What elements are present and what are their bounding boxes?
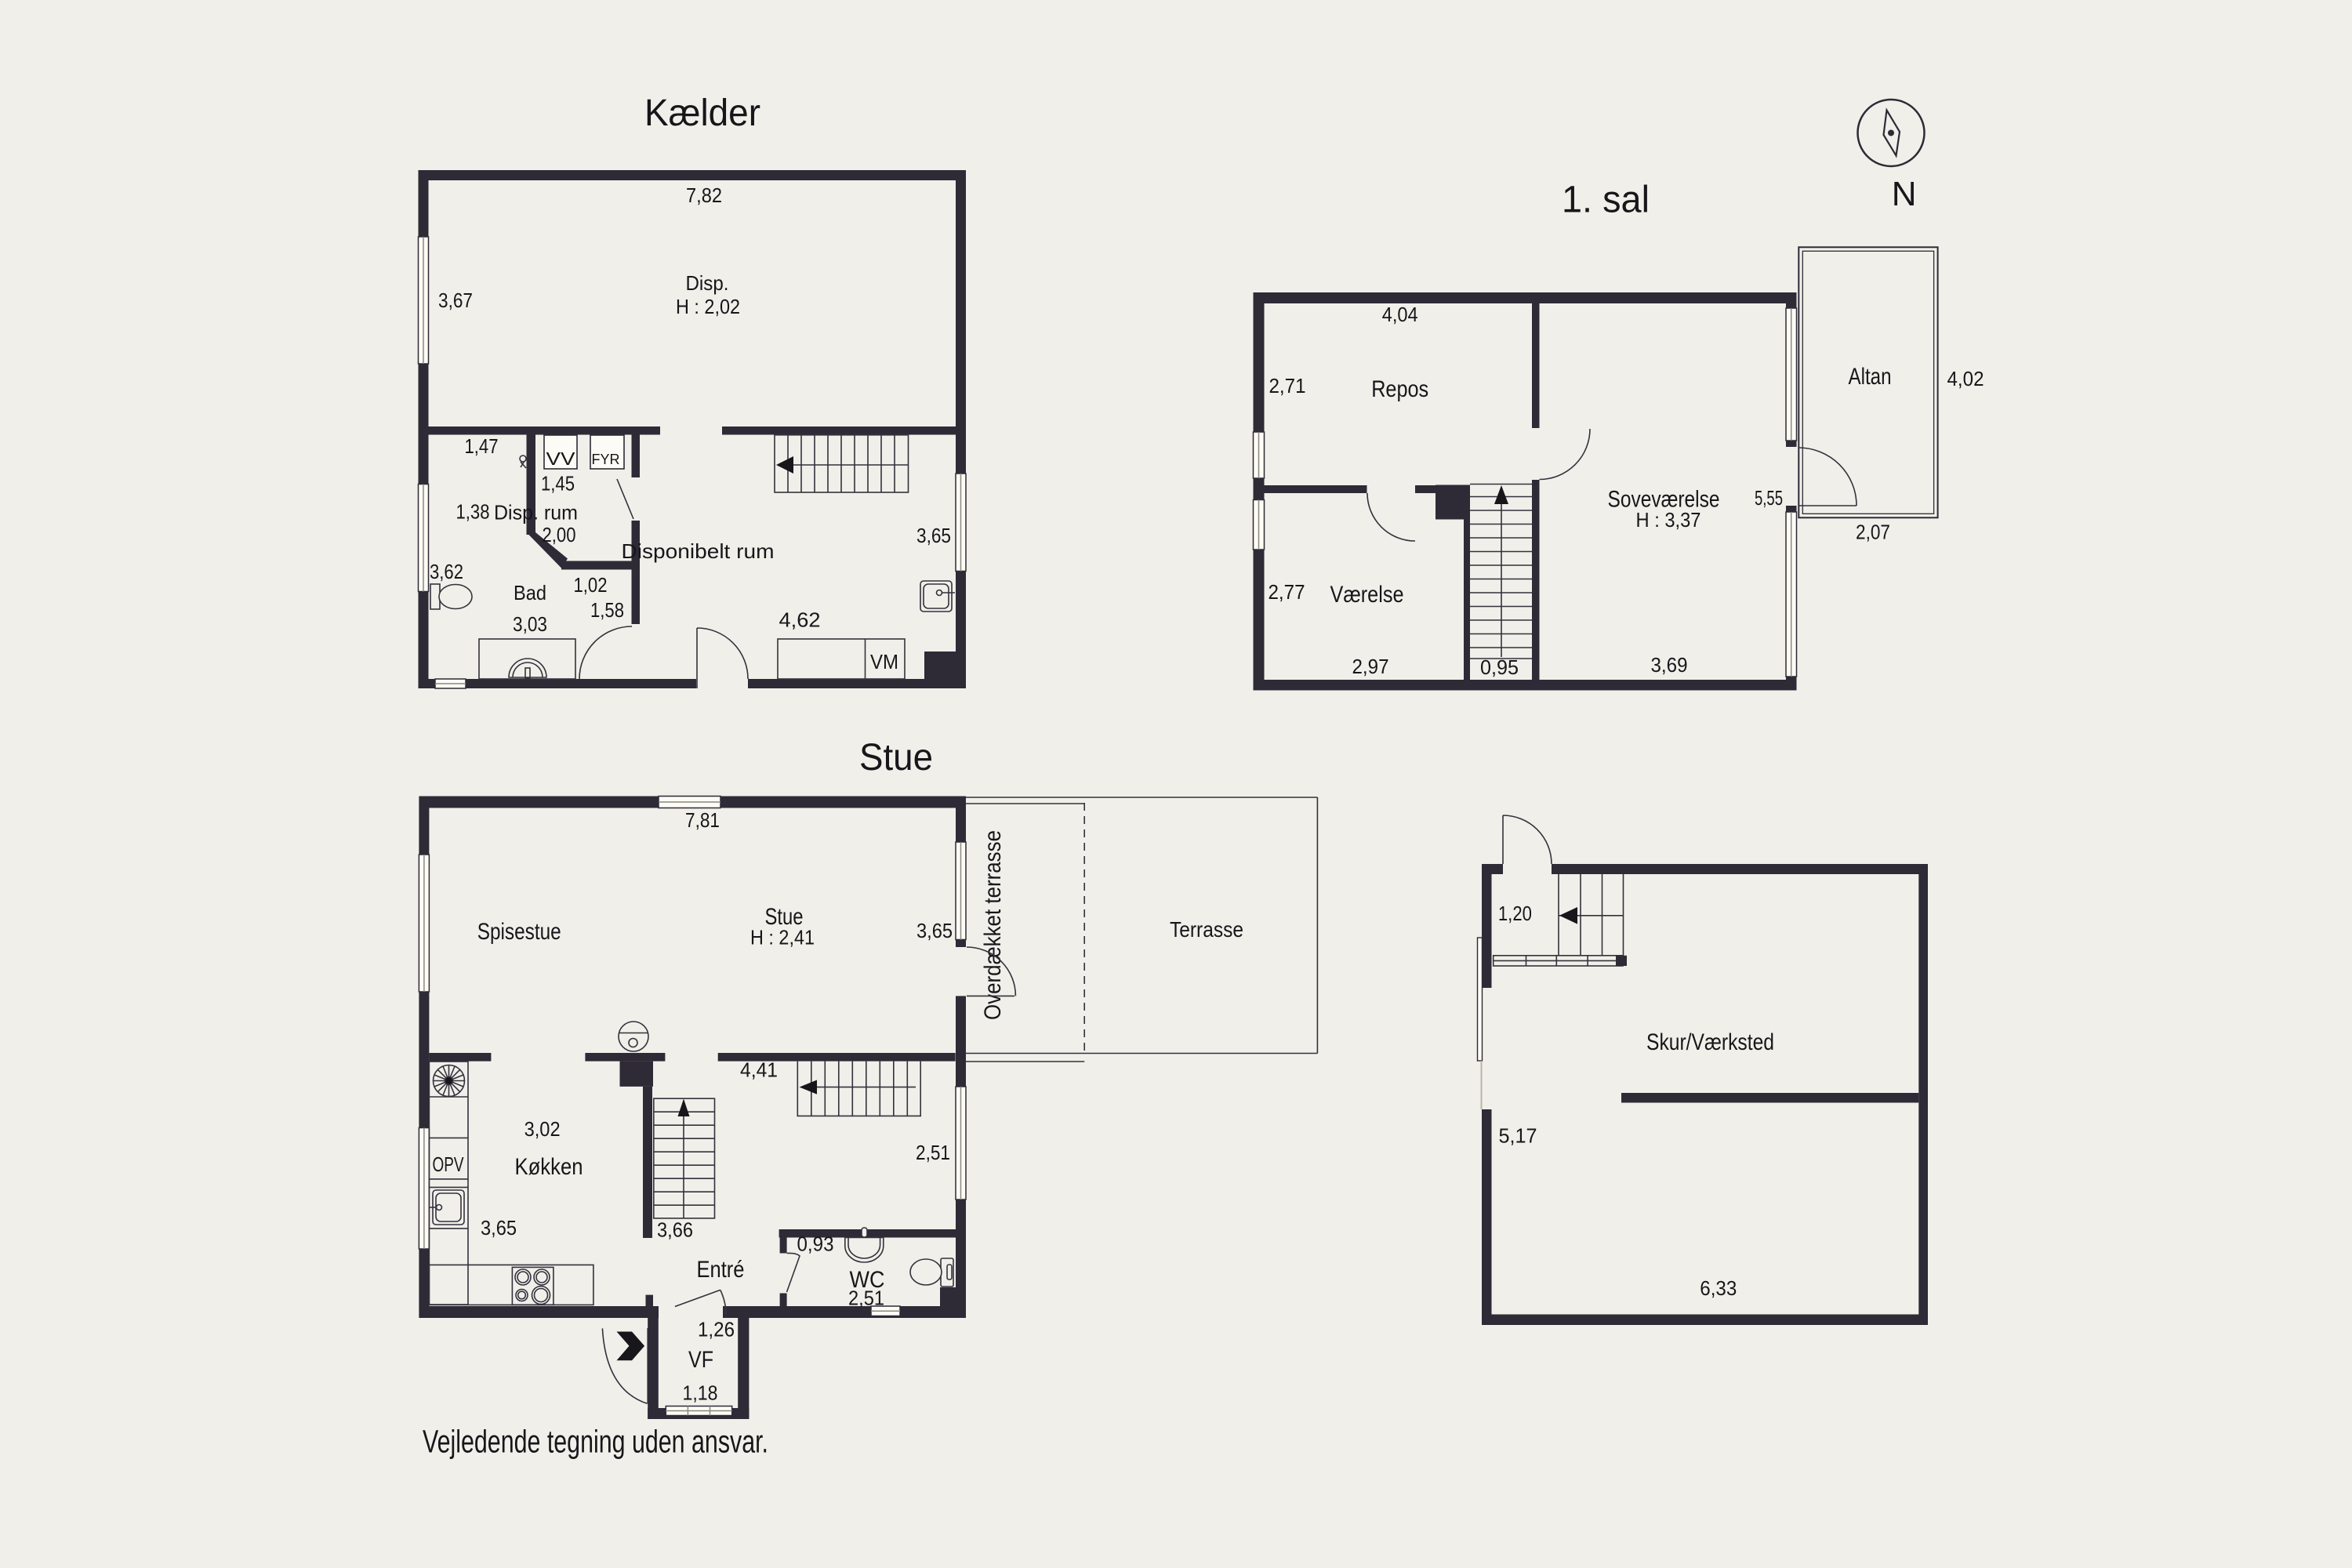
svg-text:2,51: 2,51 [848,1287,884,1310]
svg-text:1,18: 1,18 [683,1381,718,1405]
svg-text:4,62: 4,62 [779,608,821,632]
svg-text:1,38: 1,38 [456,500,490,524]
svg-text:1,45: 1,45 [541,472,575,495]
svg-text:4,41: 4,41 [740,1058,778,1082]
svg-text:FYR: FYR [592,452,620,467]
svg-text:H : 3,37: H : 3,37 [1636,508,1701,532]
svg-text:Terrasse: Terrasse [1170,917,1243,942]
svg-text:2,00: 2,00 [543,523,576,546]
svg-text:Entré: Entré [697,1257,745,1283]
svg-text:H : 2,41: H : 2,41 [750,926,815,949]
svg-text:0,95: 0,95 [1480,655,1519,679]
svg-text:Altan: Altan [1849,364,1892,390]
svg-text:3,02: 3,02 [524,1117,561,1141]
svg-text:H : 2,02: H : 2,02 [676,295,740,318]
svg-text:VM: VM [870,650,898,673]
svg-text:6,33: 6,33 [1700,1276,1737,1300]
svg-text:Disp.: Disp. [686,271,729,295]
svg-text:0,93: 0,93 [797,1232,834,1256]
svg-text:3,67: 3,67 [438,289,473,312]
svg-text:3,62: 3,62 [430,560,463,583]
svg-text:1. sal: 1. sal [1562,180,1650,221]
svg-text:N: N [1892,175,1917,213]
svg-text:4,04: 4,04 [1382,303,1418,326]
svg-text:3,65: 3,65 [916,524,951,547]
svg-text:3,03: 3,03 [513,612,547,636]
svg-text:2,51: 2,51 [916,1141,950,1164]
svg-text:Værelse: Værelse [1330,582,1404,608]
svg-text:3,69: 3,69 [1651,653,1688,677]
svg-text:3,66: 3,66 [657,1218,693,1242]
svg-text:Disponibelt rum: Disponibelt rum [622,539,775,563]
svg-text:1,58: 1,58 [590,598,624,622]
svg-text:7,81: 7,81 [685,808,720,832]
svg-text:Kælder: Kælder [644,93,760,134]
svg-text:Skur/Værksted: Skur/Værksted [1646,1029,1774,1055]
svg-text:7,82: 7,82 [686,183,722,207]
svg-text:Disp. rum: Disp. rum [494,501,578,524]
svg-text:OPV: OPV [433,1152,464,1176]
svg-text:VF: VF [688,1347,713,1373]
svg-text:1,47: 1,47 [465,434,499,458]
svg-text:1,02: 1,02 [574,573,608,597]
svg-text:1,20: 1,20 [1498,902,1532,925]
svg-text:2,07: 2,07 [1856,521,1890,544]
svg-text:3,65: 3,65 [481,1216,517,1240]
svg-text:2,71: 2,71 [1269,374,1306,397]
svg-text:2,77: 2,77 [1269,580,1305,604]
svg-text:Repos: Repos [1371,376,1428,402]
svg-text:VV: VV [546,448,576,469]
svg-text:3,65: 3,65 [916,919,953,942]
svg-text:2,97: 2,97 [1352,655,1389,678]
svg-text:Køkken: Køkken [515,1154,583,1180]
svg-text:5,55: 5,55 [1755,486,1783,510]
svg-text:Overdækket terrasse: Overdækket terrasse [980,830,1006,1020]
svg-text:Stue: Stue [859,737,933,779]
svg-text:Bad: Bad [514,581,546,604]
svg-text:1,26: 1,26 [698,1318,735,1341]
svg-text:4,02: 4,02 [1947,367,1984,390]
svg-text:Vejledende tegning uden ansvar: Vejledende tegning uden ansvar. [423,1424,768,1460]
svg-text:5,17: 5,17 [1499,1124,1537,1148]
svg-text:Spisestue: Spisestue [477,919,561,945]
